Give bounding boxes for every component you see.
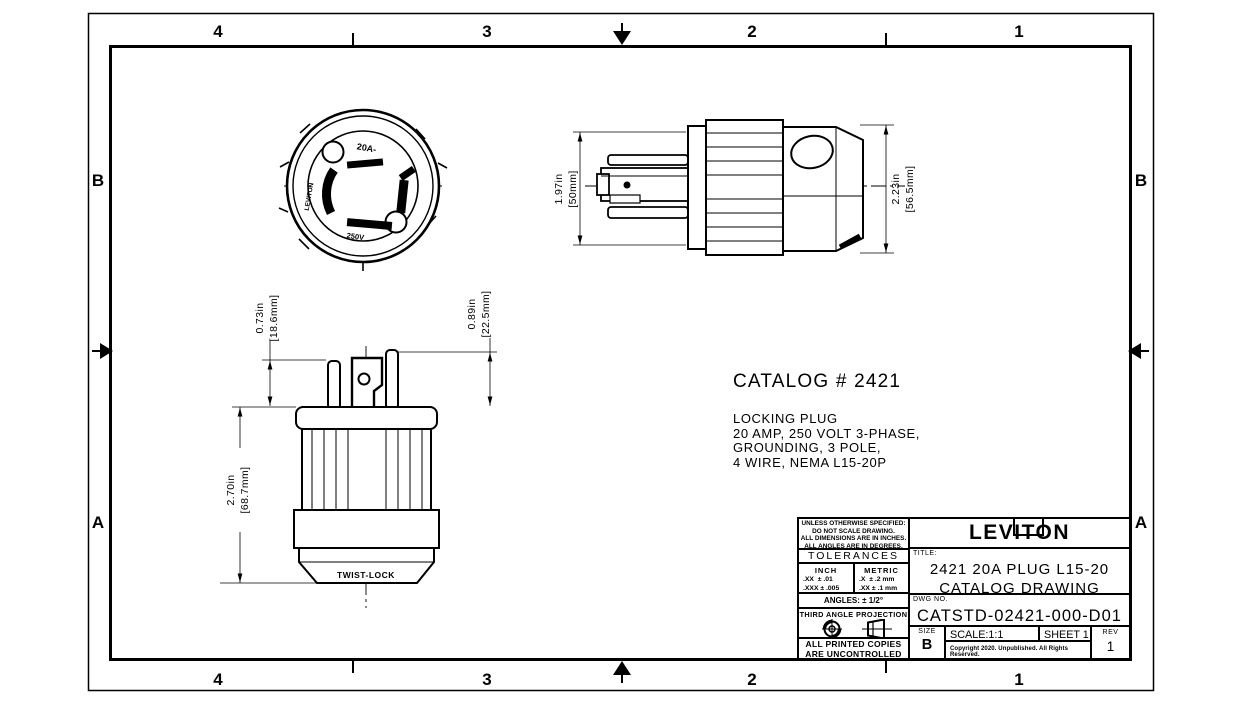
dwg-no-field: DWG NO. CATSTD-02421-000-D01 <box>910 595 1129 627</box>
zone-label-left-b: B <box>92 171 104 190</box>
dim-text-mm: [56.5mm] <box>904 166 916 213</box>
tolerances-heading: TOLERANCES <box>799 550 910 564</box>
bottom-view: TWIST-LOCK 0.73in [18.6mm] 0.89in [22.5m… <box>220 291 497 608</box>
metric-row: .X ± .2 mm <box>859 576 894 583</box>
side-blade-bottom <box>608 207 688 218</box>
body-cap <box>296 407 437 429</box>
dwg-no-label: DWG NO. <box>913 596 948 603</box>
molded-brand-text: TWIST-LOCK <box>337 570 395 580</box>
body-ribbed <box>302 429 431 510</box>
title-block: UNLESS OTHERWISE SPECIFIED: DO NOT SCALE… <box>797 517 1131 660</box>
dwg-number: CATSTD-02421-000-D01 <box>910 607 1129 626</box>
title-label: TITLE: <box>913 550 937 557</box>
side-body <box>706 120 783 255</box>
projection-front-symbol-icon <box>822 619 842 639</box>
inch-header: INCH <box>799 564 853 575</box>
inch-values: .XX ± .01.XXX ± .005 <box>799 575 853 593</box>
title-line: CATALOG DRAWING <box>910 579 1129 595</box>
note-line: DO NOT SCALE DRAWING. <box>799 528 908 536</box>
bottom-center-arrow-icon <box>613 661 631 683</box>
dimension-plug-height: 2.23in [56.5mm] <box>860 125 916 253</box>
copyright-note: Copyright 2020. Unpublished. All Rights … <box>946 642 1092 658</box>
side-face-plate <box>688 126 706 249</box>
dimension-blade-left: 0.73in [18.6mm] <box>254 295 326 406</box>
leviton-logo: LEVITON <box>910 519 1129 549</box>
dimension-blade-right: 0.89in [22.5mm] <box>398 291 497 406</box>
dim-text-mm: [50mm] <box>567 170 579 207</box>
zone-label-bottom-4: 4 <box>213 670 223 689</box>
angles-tolerance: ANGLES: ± 1/2° <box>799 594 910 609</box>
size-field: SIZE B <box>910 627 946 658</box>
size-value: B <box>910 637 944 653</box>
side-blades <box>597 155 688 218</box>
logo-text: LEVITON <box>910 519 1129 547</box>
side-blade-top <box>608 155 688 165</box>
uncontrolled-line: ARE UNCONTROLLED <box>799 650 908 659</box>
zone-label-bottom-1: 1 <box>1014 670 1023 689</box>
front-view: 20A- LEVITON 250V <box>279 109 447 271</box>
dim-text-mm: [68.7mm] <box>239 467 251 514</box>
tolerance-notes: UNLESS OTHERWISE SPECIFIED: DO NOT SCALE… <box>799 519 910 550</box>
dim-text-in: 1.97in <box>553 173 565 204</box>
rev-field: REV 1 <box>1092 627 1129 658</box>
inch-tolerances: INCH .XX ± .01.XXX ± .005 <box>799 564 855 592</box>
bottom-blade-right <box>386 350 398 409</box>
inch-row: .XX ± .01 <box>803 576 833 583</box>
metric-header: METRIC <box>855 564 908 575</box>
catalog-line: GROUNDING, 3 POLE, <box>733 441 983 456</box>
uncontrolled-note: ALL PRINTED COPIES ARE UNCONTROLLED <box>799 639 910 658</box>
drawing-title: 2421 20A PLUG L15-20 CATALOG DRAWING <box>910 560 1129 595</box>
title-field: TITLE: 2421 20A PLUG L15-20 CATALOG DRAW… <box>910 549 1129 595</box>
metric-values: .X ± .2 mm.XX ± .1 mm <box>855 575 908 593</box>
projection-side-symbol-icon <box>862 620 892 639</box>
zone-label-top-1: 1 <box>1014 22 1023 41</box>
dim-text-in: 2.70in <box>225 474 237 505</box>
body-band <box>294 510 439 548</box>
zone-label-bottom-3: 3 <box>482 670 491 689</box>
tolerances-table: INCH .XX ± .01.XXX ± .005 METRIC .X ± .2… <box>799 564 910 594</box>
dim-text-in: 0.73in <box>254 302 266 333</box>
blade-rivet <box>624 182 631 189</box>
dim-text-in: 2.23in <box>890 173 902 204</box>
note-line: ALL ANGLES ARE IN DEGREES. <box>799 543 908 550</box>
sheet-field: SHEET 1 OF 1 <box>1040 627 1092 642</box>
side-blade-ground-tip <box>597 174 609 195</box>
metric-row: .XX ± .1 mm <box>859 585 897 592</box>
zone-label-right-b: B <box>1135 171 1147 190</box>
catalog-line: LOCKING PLUG <box>733 412 983 427</box>
zone-label-top-3: 3 <box>482 22 491 41</box>
catalog-number-heading: CATALOG # 2421 <box>733 371 983 393</box>
projection-label: THIRD ANGLE PROJECTION <box>799 609 908 619</box>
rev-value: 1 <box>1092 639 1129 654</box>
projection-symbols <box>800 619 907 639</box>
zone-label-right-a: A <box>1135 513 1147 532</box>
zone-label-top-4: 4 <box>213 22 223 41</box>
side-blade-step <box>610 195 640 203</box>
scale-field: SCALE:1:1 <box>946 627 1040 642</box>
dim-text-mm: [22.5mm] <box>480 291 492 338</box>
note-line: UNLESS OTHERWISE SPECIFIED: <box>799 520 908 528</box>
side-view: 1.97in [50mm] 2.23in [56.5mm] <box>553 120 916 255</box>
catalog-line: 20 AMP, 250 VOLT 3-PHASE, <box>733 427 983 442</box>
metric-tolerances: METRIC .X ± .2 mm.XX ± .1 mm <box>855 564 908 592</box>
bottom-blade-left <box>328 361 340 409</box>
zone-label-bottom-2: 2 <box>747 670 756 689</box>
ground-blade-hole <box>359 374 370 385</box>
zone-label-left-a: A <box>92 513 104 532</box>
rev-label: REV <box>1092 629 1129 636</box>
title-line: 2421 20A PLUG L15-20 <box>910 560 1129 579</box>
note-line: ALL DIMENSIONS ARE IN INCHES. <box>799 535 908 543</box>
third-angle-projection: THIRD ANGLE PROJECTION <box>799 609 910 639</box>
dim-text-in: 0.89in <box>466 298 478 329</box>
catalog-line: 4 WIRE, NEMA L15-20P <box>733 456 983 471</box>
top-center-arrow-icon <box>613 23 631 45</box>
drawing-sheet: 4 3 2 1 4 3 2 1 B A B A 20A- LEVIT <box>0 0 1241 705</box>
size-label: SIZE <box>910 628 944 635</box>
dim-text-mm: [18.6mm] <box>268 295 280 342</box>
inch-row: .XXX ± .005 <box>803 585 839 592</box>
catalog-description: CATALOG # 2421 LOCKING PLUG 20 AMP, 250 … <box>733 371 983 471</box>
assembly-screw <box>323 142 344 163</box>
zone-label-top-2: 2 <box>747 22 756 41</box>
